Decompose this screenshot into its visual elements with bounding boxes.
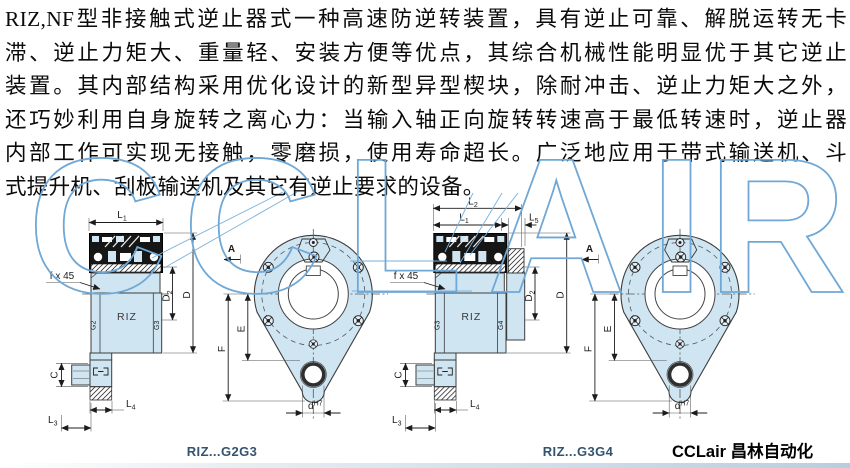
dim-l1: L1 bbox=[89, 210, 163, 231]
intro-line-6: 式提升机、刮板输送机及其它有逆止要求的设备。 bbox=[5, 171, 847, 205]
g3-label-right: G3 bbox=[435, 321, 442, 330]
caption-riz-g3g4: RIZ...G3G4 bbox=[508, 444, 648, 459]
front-view-g2g3 bbox=[217, 229, 388, 419]
dim-l4-right: L4 bbox=[434, 399, 479, 414]
dim-l5-label: L5 bbox=[529, 213, 539, 226]
g2-label: G2 bbox=[91, 321, 98, 330]
intro-paragraph: RIZ,NF型非接触式逆止器式一种高速防逆转装置，具有逆止可靠、解脱运转无卡 滞… bbox=[5, 3, 847, 204]
intro-line-3: 装置。其内部结构采用优化设计的新型异型楔块，除耐冲击、逆止力矩大之外， bbox=[5, 70, 847, 104]
dim-d-label: D bbox=[182, 291, 193, 298]
collar-hatched bbox=[508, 249, 524, 273]
section-arrow-a-right bbox=[582, 244, 599, 264]
intro-line-5: 内部工作可实现无接触，零磨损，使用寿命超长。广泛地应用于带式输送机、斗 bbox=[5, 137, 847, 171]
dim-c-label: C bbox=[50, 371, 61, 378]
dim-d2: D2 bbox=[162, 267, 178, 320]
front-view-g3g4 bbox=[584, 229, 755, 419]
dim-c-right-label: C bbox=[394, 371, 405, 378]
dim-l4-label: L4 bbox=[126, 399, 136, 412]
brand-text: CCLair 昌林自动化 bbox=[672, 438, 848, 462]
dim-fx45-right-label: f x 45 bbox=[394, 271, 419, 282]
datasheet-page: RIZ,NF型非接触式逆止器式一种高速防逆转装置，具有逆止可靠、解脱运转无卡 滞… bbox=[0, 0, 850, 468]
cross-section-g3g4: G3 G4 L2 L1 bbox=[350, 193, 599, 432]
dim-d2-right-label: D2 bbox=[524, 290, 537, 301]
intro-line-1: RIZ,NF型非接触式逆止器式一种高速防逆转装置，具有逆止可靠、解脱运转无卡 bbox=[5, 3, 847, 37]
dim-fx45-label: f x 45 bbox=[50, 271, 75, 282]
dim-l3-label: L3 bbox=[48, 415, 58, 428]
section-arrow-a-left bbox=[224, 244, 241, 264]
dim-d-right-label: D bbox=[556, 291, 567, 298]
dim-l3-right-label: L3 bbox=[392, 415, 402, 428]
dim-l4: L4 bbox=[90, 399, 136, 414]
outer-flange-ring bbox=[507, 273, 525, 340]
g4-label: G4 bbox=[498, 321, 505, 330]
intro-line-4: 还巧妙利用自身旋转之离心力：当输入轴正向旋转转速高于最低转速时，逆止器 bbox=[5, 104, 847, 138]
dim-l4-right-label: L4 bbox=[470, 399, 480, 412]
dim-l3: L3 bbox=[48, 403, 91, 432]
intro-line-2: 滞、逆止力矩大、重量轻、安装方便等优点，其综合机械性能明显优于其它逆止 bbox=[5, 37, 847, 71]
dim-l3-right: L3 bbox=[392, 403, 435, 432]
dim-d2-right: D2 bbox=[524, 267, 540, 320]
g3-label: G3 bbox=[154, 321, 161, 330]
dim-l1-label: L1 bbox=[117, 210, 127, 223]
dim-l1-right: L1 bbox=[433, 213, 501, 232]
dim-d2-label: D2 bbox=[162, 290, 175, 301]
caption-riz-g2g3: RIZ...G2G3 bbox=[152, 444, 292, 459]
